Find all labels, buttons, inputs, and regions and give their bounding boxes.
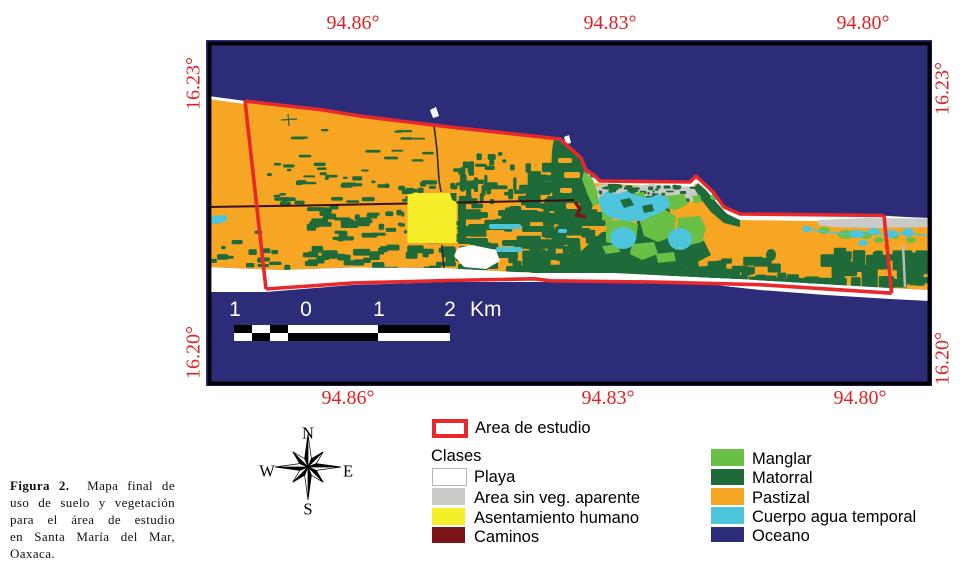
svg-text:1: 1 bbox=[373, 298, 385, 321]
svg-text:E: E bbox=[343, 462, 353, 481]
svg-text:1: 1 bbox=[229, 298, 241, 321]
svg-text:2: 2 bbox=[444, 298, 456, 321]
svg-text:N: N bbox=[302, 424, 314, 443]
svg-text:0: 0 bbox=[300, 298, 312, 321]
svg-text:W: W bbox=[259, 462, 275, 481]
svg-text:Km: Km bbox=[470, 298, 502, 321]
svg-text:S: S bbox=[303, 500, 312, 519]
